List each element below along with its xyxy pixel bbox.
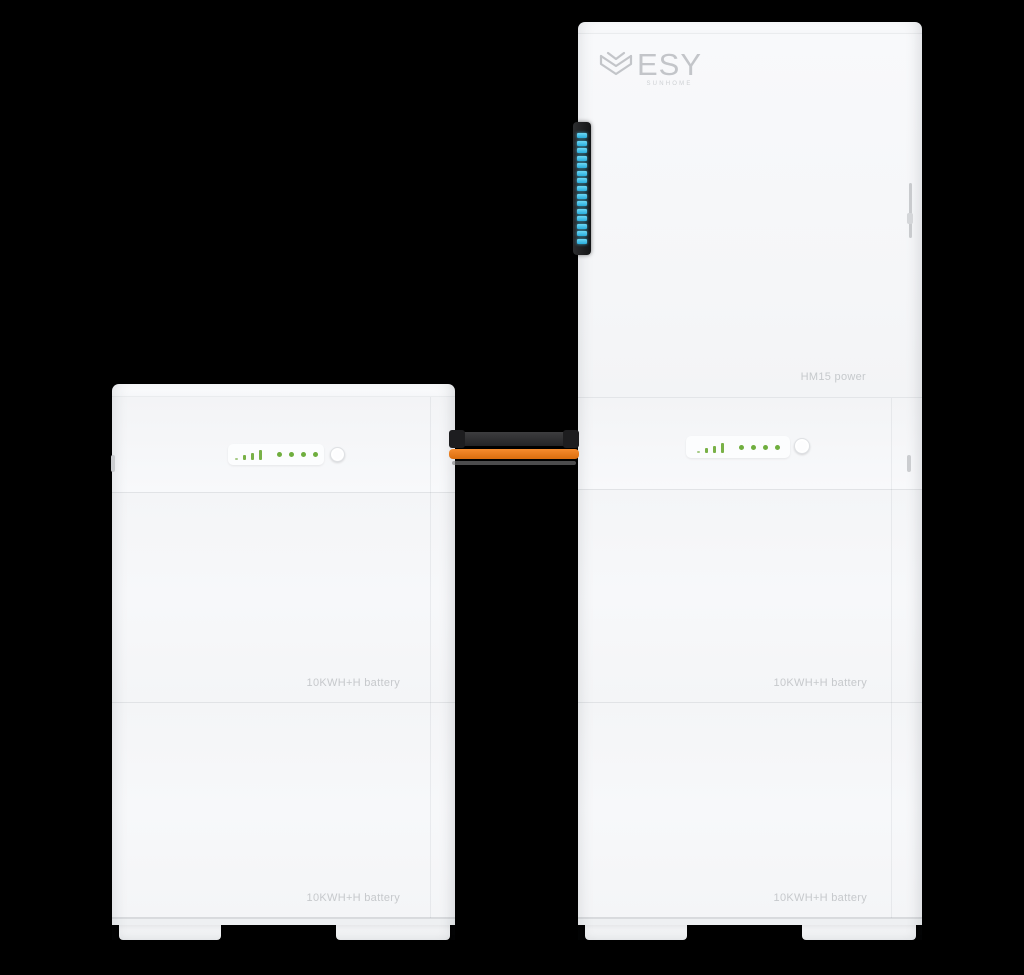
left-tower-foot-right <box>336 925 450 940</box>
led-seg-icon <box>577 209 587 214</box>
right-tower-indicator-section <box>578 398 922 490</box>
brand-subname: SUNHOME <box>646 81 692 87</box>
left-battery-module-2: 10KWH+H battery <box>112 703 455 918</box>
sig-bar-icon <box>251 453 254 460</box>
sig-bar-icon <box>705 448 708 453</box>
left-tower-foot-left <box>119 925 221 940</box>
connection-cables <box>449 429 579 469</box>
left-tower-top-cap <box>112 384 455 397</box>
left-battery-level-leds <box>277 452 318 457</box>
right-power-button[interactable] <box>794 438 810 454</box>
led-seg-icon <box>577 163 587 168</box>
sig-bar-icon <box>721 443 724 453</box>
cable-connector-icon <box>449 430 465 448</box>
left-signal-strength-leds <box>235 449 262 460</box>
sig-bar-icon <box>697 451 700 453</box>
led-seg-icon <box>577 178 587 183</box>
right-tower-foot-right <box>802 925 916 940</box>
led-seg-icon <box>577 194 587 199</box>
led-status-strip <box>573 122 591 255</box>
right-side-bracket-icon <box>909 183 912 238</box>
battery-module-label: 10KWH+H battery <box>307 892 400 904</box>
battery-tower-left: 10KWH+H battery 10KWH+H battery <box>112 384 455 940</box>
cable-shadow <box>452 461 576 465</box>
right-tower-top-cap <box>578 22 922 34</box>
right-lower-side-bracket-icon <box>907 455 911 472</box>
led-dot-icon <box>313 452 318 457</box>
brand-logo: ESY SUNHOME <box>598 50 702 87</box>
left-panel-seam <box>430 397 431 918</box>
led-seg-icon <box>577 148 587 153</box>
orange-power-cable <box>449 449 579 459</box>
led-dot-icon <box>763 445 768 450</box>
led-seg-icon <box>577 224 587 229</box>
left-tower-indicator-section <box>112 397 455 493</box>
led-seg-icon <box>577 141 587 146</box>
battery-module-label: 10KWH+H battery <box>307 677 400 689</box>
led-seg-icon <box>577 216 587 221</box>
left-status-panel <box>228 444 324 465</box>
scene: 10KWH+H battery 10KWH+H battery <box>0 0 1024 975</box>
left-power-button[interactable] <box>330 447 345 462</box>
led-dot-icon <box>277 452 282 457</box>
power-model-label: HM15 power <box>801 371 866 383</box>
sig-bar-icon <box>259 450 262 460</box>
led-seg-icon <box>577 201 587 206</box>
right-battery-module-2: 10KWH+H battery <box>578 703 922 918</box>
inverter-tower-right: ESY SUNHOME HM15 power 10KWH+H battery 1… <box>578 22 922 940</box>
brand-name: ESY <box>637 50 702 80</box>
sig-bar-icon <box>243 455 246 460</box>
left-side-bracket-icon <box>111 455 115 472</box>
right-panel-seam <box>891 398 892 918</box>
battery-module-label: 10KWH+H battery <box>774 892 867 904</box>
left-tower-base <box>112 918 455 925</box>
led-seg-icon <box>577 156 587 161</box>
black-power-cable <box>449 432 579 446</box>
led-dot-icon <box>301 452 306 457</box>
right-battery-level-leds <box>739 445 780 450</box>
inverter-section: ESY SUNHOME HM15 power <box>578 34 922 398</box>
left-battery-module-1: 10KWH+H battery <box>112 493 455 703</box>
right-tower-foot-left <box>585 925 687 940</box>
led-dot-icon <box>289 452 294 457</box>
brand-logo-text: ESY SUNHOME <box>637 50 702 87</box>
led-dot-icon <box>751 445 756 450</box>
right-tower-base <box>578 918 922 925</box>
led-seg-icon <box>577 186 587 191</box>
led-seg-icon <box>577 231 587 236</box>
cable-connector-icon <box>563 430 579 448</box>
led-dot-icon <box>775 445 780 450</box>
sig-bar-icon <box>235 458 238 460</box>
right-battery-module-1: 10KWH+H battery <box>578 490 922 703</box>
led-seg-icon <box>577 133 587 138</box>
right-status-panel <box>686 436 790 458</box>
led-strip-segments <box>573 133 591 244</box>
led-seg-icon <box>577 239 587 244</box>
led-dot-icon <box>739 445 744 450</box>
battery-module-label: 10KWH+H battery <box>774 677 867 689</box>
esy-logo-icon <box>598 50 634 84</box>
right-signal-strength-leds <box>697 442 724 453</box>
sig-bar-icon <box>713 446 716 453</box>
led-seg-icon <box>577 171 587 176</box>
